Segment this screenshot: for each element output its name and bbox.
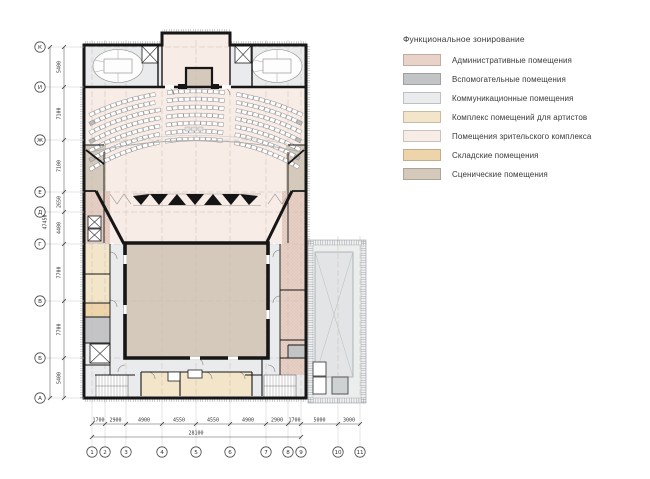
seat bbox=[242, 102, 248, 107]
seat bbox=[190, 105, 195, 109]
seat bbox=[179, 89, 184, 93]
legend-item: Сценические помещения bbox=[403, 168, 648, 180]
seat bbox=[189, 121, 194, 125]
seat bbox=[235, 125, 241, 130]
legend-swatch-storage bbox=[403, 149, 441, 161]
seat bbox=[172, 106, 178, 110]
seat bbox=[165, 131, 171, 135]
stairwell-bottom-left bbox=[96, 375, 128, 397]
annex-hatch bbox=[308, 398, 366, 403]
seat bbox=[241, 118, 247, 123]
seat bbox=[202, 97, 207, 101]
seat bbox=[149, 117, 155, 122]
seat bbox=[196, 97, 201, 101]
legend-swatch-admin bbox=[403, 54, 441, 66]
dimension-label: 3000 bbox=[343, 418, 355, 424]
legend: Функциональное зонирование Административ… bbox=[403, 34, 648, 187]
legend-items: Административные помещенияВспомогательны… bbox=[403, 54, 648, 180]
axis-label-v: В bbox=[38, 299, 42, 305]
legend-title: Функциональное зонирование bbox=[403, 34, 648, 44]
axis-label-h: 9 bbox=[299, 450, 303, 456]
page: КИЖЕДГВБА1234567891011 54007100710026504… bbox=[0, 0, 650, 479]
seat bbox=[248, 95, 254, 100]
stairwell-bottom-right bbox=[264, 375, 296, 397]
sound-desk bbox=[192, 127, 197, 131]
hatch-overlay bbox=[280, 358, 306, 375]
legend-swatch-stage bbox=[403, 168, 441, 180]
legend-item-label: Вспомогательные помещения bbox=[452, 75, 566, 84]
seat bbox=[212, 122, 218, 126]
dimension-label: 5400 bbox=[57, 372, 63, 384]
seat bbox=[218, 122, 224, 126]
legend-item-label: Помещения зрительского комплекса bbox=[452, 132, 591, 141]
seat bbox=[138, 95, 144, 100]
room-booth bbox=[187, 68, 211, 88]
seat bbox=[155, 116, 161, 121]
axis-label-h: 8 bbox=[286, 450, 290, 456]
legend-item: Помещения зрительского комплекса bbox=[403, 130, 648, 142]
dimension-label: 4900 bbox=[138, 418, 150, 424]
seat bbox=[184, 105, 189, 109]
floor-plan: КИЖЕДГВБА1234567891011 54007100710026504… bbox=[0, 0, 400, 479]
legend-swatch-comm bbox=[403, 92, 441, 104]
dimension-label: 1700 bbox=[288, 418, 300, 424]
seat bbox=[217, 138, 223, 142]
dimension-label: 1700 bbox=[92, 418, 104, 424]
seat bbox=[149, 125, 155, 130]
axis-label-h: 5 bbox=[194, 450, 198, 456]
legend-swatch-aux bbox=[403, 73, 441, 85]
seat bbox=[213, 114, 219, 118]
room-fills bbox=[80, 29, 366, 403]
seat bbox=[241, 110, 247, 115]
axis-label-v: Б bbox=[38, 356, 42, 362]
legend-item-label: Сценические помещения bbox=[452, 170, 548, 179]
seat bbox=[242, 94, 248, 99]
dimension-label: 2900 bbox=[271, 418, 283, 424]
seat bbox=[172, 114, 178, 118]
seat bbox=[167, 106, 173, 110]
room-artist-left-2 bbox=[85, 274, 110, 303]
seat bbox=[185, 89, 190, 93]
axis-label-h: 10 bbox=[334, 450, 342, 456]
room-wc-left bbox=[86, 317, 110, 343]
seat bbox=[183, 121, 188, 125]
legend-item-label: Административные помещения bbox=[452, 56, 572, 65]
dimension-label: 4400 bbox=[57, 222, 63, 234]
seat bbox=[172, 122, 178, 126]
legend-swatch-artists bbox=[403, 111, 441, 123]
seat bbox=[184, 97, 189, 101]
dimension-label: 4550 bbox=[207, 418, 219, 424]
dimension-label: 7700 bbox=[57, 266, 63, 278]
seat bbox=[196, 89, 201, 93]
dimension-label: 5400 bbox=[57, 61, 63, 73]
seat bbox=[150, 93, 156, 98]
seat bbox=[207, 97, 212, 101]
legend-item: Вспомогательные помещения bbox=[403, 73, 648, 85]
seat bbox=[195, 121, 200, 125]
wall-stub bbox=[178, 84, 186, 89]
axis-label-h: 1 bbox=[90, 450, 94, 456]
seat bbox=[219, 106, 225, 110]
legend-item: Комплекс помещений для артистов bbox=[403, 111, 648, 123]
seat bbox=[177, 130, 182, 134]
stair-oval-left bbox=[93, 50, 143, 83]
legend-item: Складские помещения bbox=[403, 149, 648, 161]
annex-box bbox=[313, 362, 326, 376]
seat bbox=[202, 89, 207, 93]
axis-label-v: И bbox=[38, 85, 42, 91]
axis-label-h: 3 bbox=[124, 450, 128, 456]
legend-item-label: Комплекс помещений для артистов bbox=[452, 113, 587, 122]
axis-label-v: Г bbox=[38, 242, 42, 248]
seat bbox=[195, 113, 200, 117]
seat bbox=[190, 97, 195, 101]
seat bbox=[143, 118, 149, 123]
room-artist-left-1 bbox=[85, 245, 110, 274]
annex-hatch bbox=[308, 240, 313, 403]
seat bbox=[155, 108, 161, 113]
seat bbox=[213, 98, 218, 102]
legend-item-label: Складские помещения bbox=[452, 151, 539, 160]
dimension-label: 4550 bbox=[173, 418, 185, 424]
seat bbox=[236, 92, 242, 97]
seat bbox=[144, 94, 150, 99]
seat bbox=[218, 114, 224, 118]
legend-item: Административные помещения bbox=[403, 54, 648, 66]
seat bbox=[154, 132, 160, 137]
seat bbox=[166, 123, 172, 127]
annex-hatch bbox=[308, 240, 366, 245]
seat bbox=[236, 101, 242, 106]
seat bbox=[178, 113, 183, 117]
seat bbox=[171, 138, 177, 142]
seat bbox=[150, 101, 156, 106]
corridor-left bbox=[110, 244, 125, 375]
seat bbox=[190, 113, 195, 117]
seat bbox=[219, 98, 225, 102]
room-wc-right bbox=[288, 345, 306, 358]
seat bbox=[167, 98, 173, 102]
seat bbox=[178, 97, 183, 101]
axis-label-h: 4 bbox=[160, 450, 164, 456]
seat bbox=[144, 102, 150, 107]
dimension-label: 7700 bbox=[57, 323, 63, 335]
legend-swatch-audience bbox=[403, 130, 441, 142]
seat bbox=[207, 121, 212, 125]
seat bbox=[235, 117, 241, 122]
dimension-label: 2650 bbox=[57, 196, 63, 208]
axis-label-h: 2 bbox=[103, 450, 107, 456]
seat bbox=[149, 109, 155, 114]
annex-hatch bbox=[361, 240, 366, 403]
seat bbox=[154, 141, 160, 146]
seat bbox=[201, 113, 206, 117]
seat bbox=[196, 105, 201, 109]
seat bbox=[207, 113, 212, 117]
seat bbox=[213, 106, 219, 110]
seat bbox=[236, 109, 242, 114]
stair-oval-right bbox=[252, 50, 302, 83]
seat bbox=[154, 124, 160, 129]
seat bbox=[144, 110, 150, 115]
room-storage-left bbox=[85, 303, 110, 317]
seat bbox=[219, 90, 225, 94]
seat bbox=[206, 129, 211, 133]
dimension-label: 5000 bbox=[313, 418, 325, 424]
axis-label-h: 6 bbox=[228, 450, 232, 456]
dimension-total-h: 28100 bbox=[188, 431, 203, 437]
axis-label-v: Ж bbox=[37, 138, 43, 144]
dimension-label: 7100 bbox=[57, 107, 63, 119]
seat bbox=[178, 105, 183, 109]
seat bbox=[201, 121, 206, 125]
seat bbox=[178, 121, 183, 125]
seat bbox=[201, 105, 206, 109]
axis-label-v: Е bbox=[38, 190, 42, 196]
wall-stub bbox=[211, 84, 219, 89]
axis-label-h: 11 bbox=[356, 450, 364, 456]
seat bbox=[241, 126, 247, 131]
seat bbox=[173, 98, 179, 102]
legend-item-label: Коммуникационные помещения bbox=[452, 94, 573, 103]
legend-item: Коммуникационные помещения bbox=[403, 92, 648, 104]
seat bbox=[184, 113, 189, 117]
seat bbox=[207, 105, 212, 109]
sound-desk bbox=[198, 127, 203, 131]
seat bbox=[212, 130, 218, 134]
seat bbox=[208, 89, 213, 93]
seat bbox=[190, 89, 195, 93]
dimension-label: 7100 bbox=[57, 160, 63, 172]
dimension-label: 2900 bbox=[109, 418, 121, 424]
axis-label-h: 7 bbox=[264, 450, 268, 456]
dimension-total-v: 47450 bbox=[43, 214, 49, 229]
annex-box bbox=[313, 377, 326, 394]
seat bbox=[167, 90, 173, 94]
seat bbox=[166, 114, 172, 118]
sound-desk bbox=[185, 127, 190, 131]
dimension-label: 4900 bbox=[242, 418, 254, 424]
axis-label-v: А bbox=[38, 396, 42, 402]
seat bbox=[171, 130, 177, 134]
seat bbox=[218, 130, 224, 134]
seat bbox=[213, 90, 218, 94]
annex-elevator bbox=[332, 377, 348, 394]
room-main-stage bbox=[125, 243, 268, 358]
axis-label-v: К bbox=[38, 45, 42, 51]
